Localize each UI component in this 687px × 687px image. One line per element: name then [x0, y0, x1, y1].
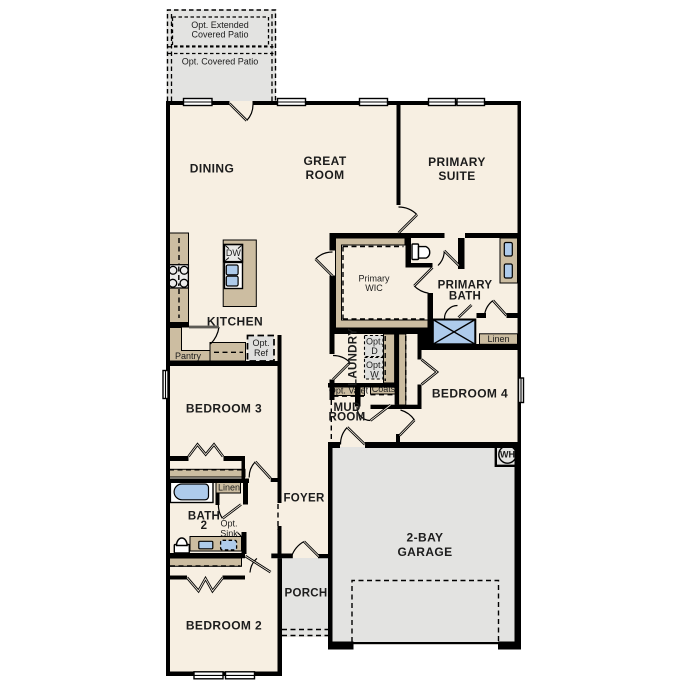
- svg-text:Covered Patio: Covered Patio: [191, 30, 248, 40]
- svg-text:2: 2: [201, 520, 208, 532]
- svg-text:Opt.: Opt.: [366, 337, 383, 347]
- svg-text:Opt. Covered Patio: Opt. Covered Patio: [182, 57, 259, 67]
- svg-text:2-BAY: 2-BAY: [407, 531, 444, 545]
- svg-text:Ref: Ref: [254, 348, 269, 358]
- svg-text:DW: DW: [226, 248, 241, 258]
- svg-text:D: D: [371, 346, 378, 356]
- svg-text:GREAT: GREAT: [303, 154, 346, 168]
- svg-text:Opt.: Opt.: [366, 360, 383, 370]
- svg-text:Primary: Primary: [359, 274, 390, 284]
- svg-text:Opt.: Opt.: [220, 519, 237, 529]
- svg-text:LAUNDRY: LAUNDRY: [348, 328, 360, 386]
- svg-text:KITCHEN: KITCHEN: [207, 315, 263, 329]
- svg-text:Opt.: Opt.: [252, 338, 269, 348]
- svg-text:SUITE: SUITE: [438, 169, 475, 183]
- svg-text:ROOM: ROOM: [306, 168, 345, 182]
- svg-text:GARAGE: GARAGE: [397, 545, 452, 559]
- svg-text:FOYER: FOYER: [283, 493, 325, 505]
- svg-text:DINING: DINING: [190, 162, 234, 176]
- svg-text:Sink: Sink: [220, 529, 238, 539]
- svg-text:WIC: WIC: [365, 283, 383, 293]
- svg-text:BEDROOM 3: BEDROOM 3: [186, 402, 262, 416]
- svg-text:BEDROOM 4: BEDROOM 4: [432, 387, 508, 401]
- svg-text:BEDROOM 2: BEDROOM 2: [186, 619, 262, 633]
- svg-text:Linen: Linen: [487, 334, 509, 344]
- svg-text:Opt. Extended: Opt. Extended: [191, 20, 249, 30]
- svg-text:PORCH: PORCH: [284, 588, 327, 600]
- svg-text:PRIMARY: PRIMARY: [428, 155, 486, 169]
- svg-text:Pantry: Pantry: [175, 351, 202, 361]
- svg-text:WH: WH: [500, 449, 515, 459]
- svg-text:ROOM: ROOM: [329, 412, 366, 424]
- svg-text:W: W: [370, 370, 379, 380]
- svg-text:BATH: BATH: [449, 291, 481, 303]
- svg-text:Linen: Linen: [218, 483, 240, 493]
